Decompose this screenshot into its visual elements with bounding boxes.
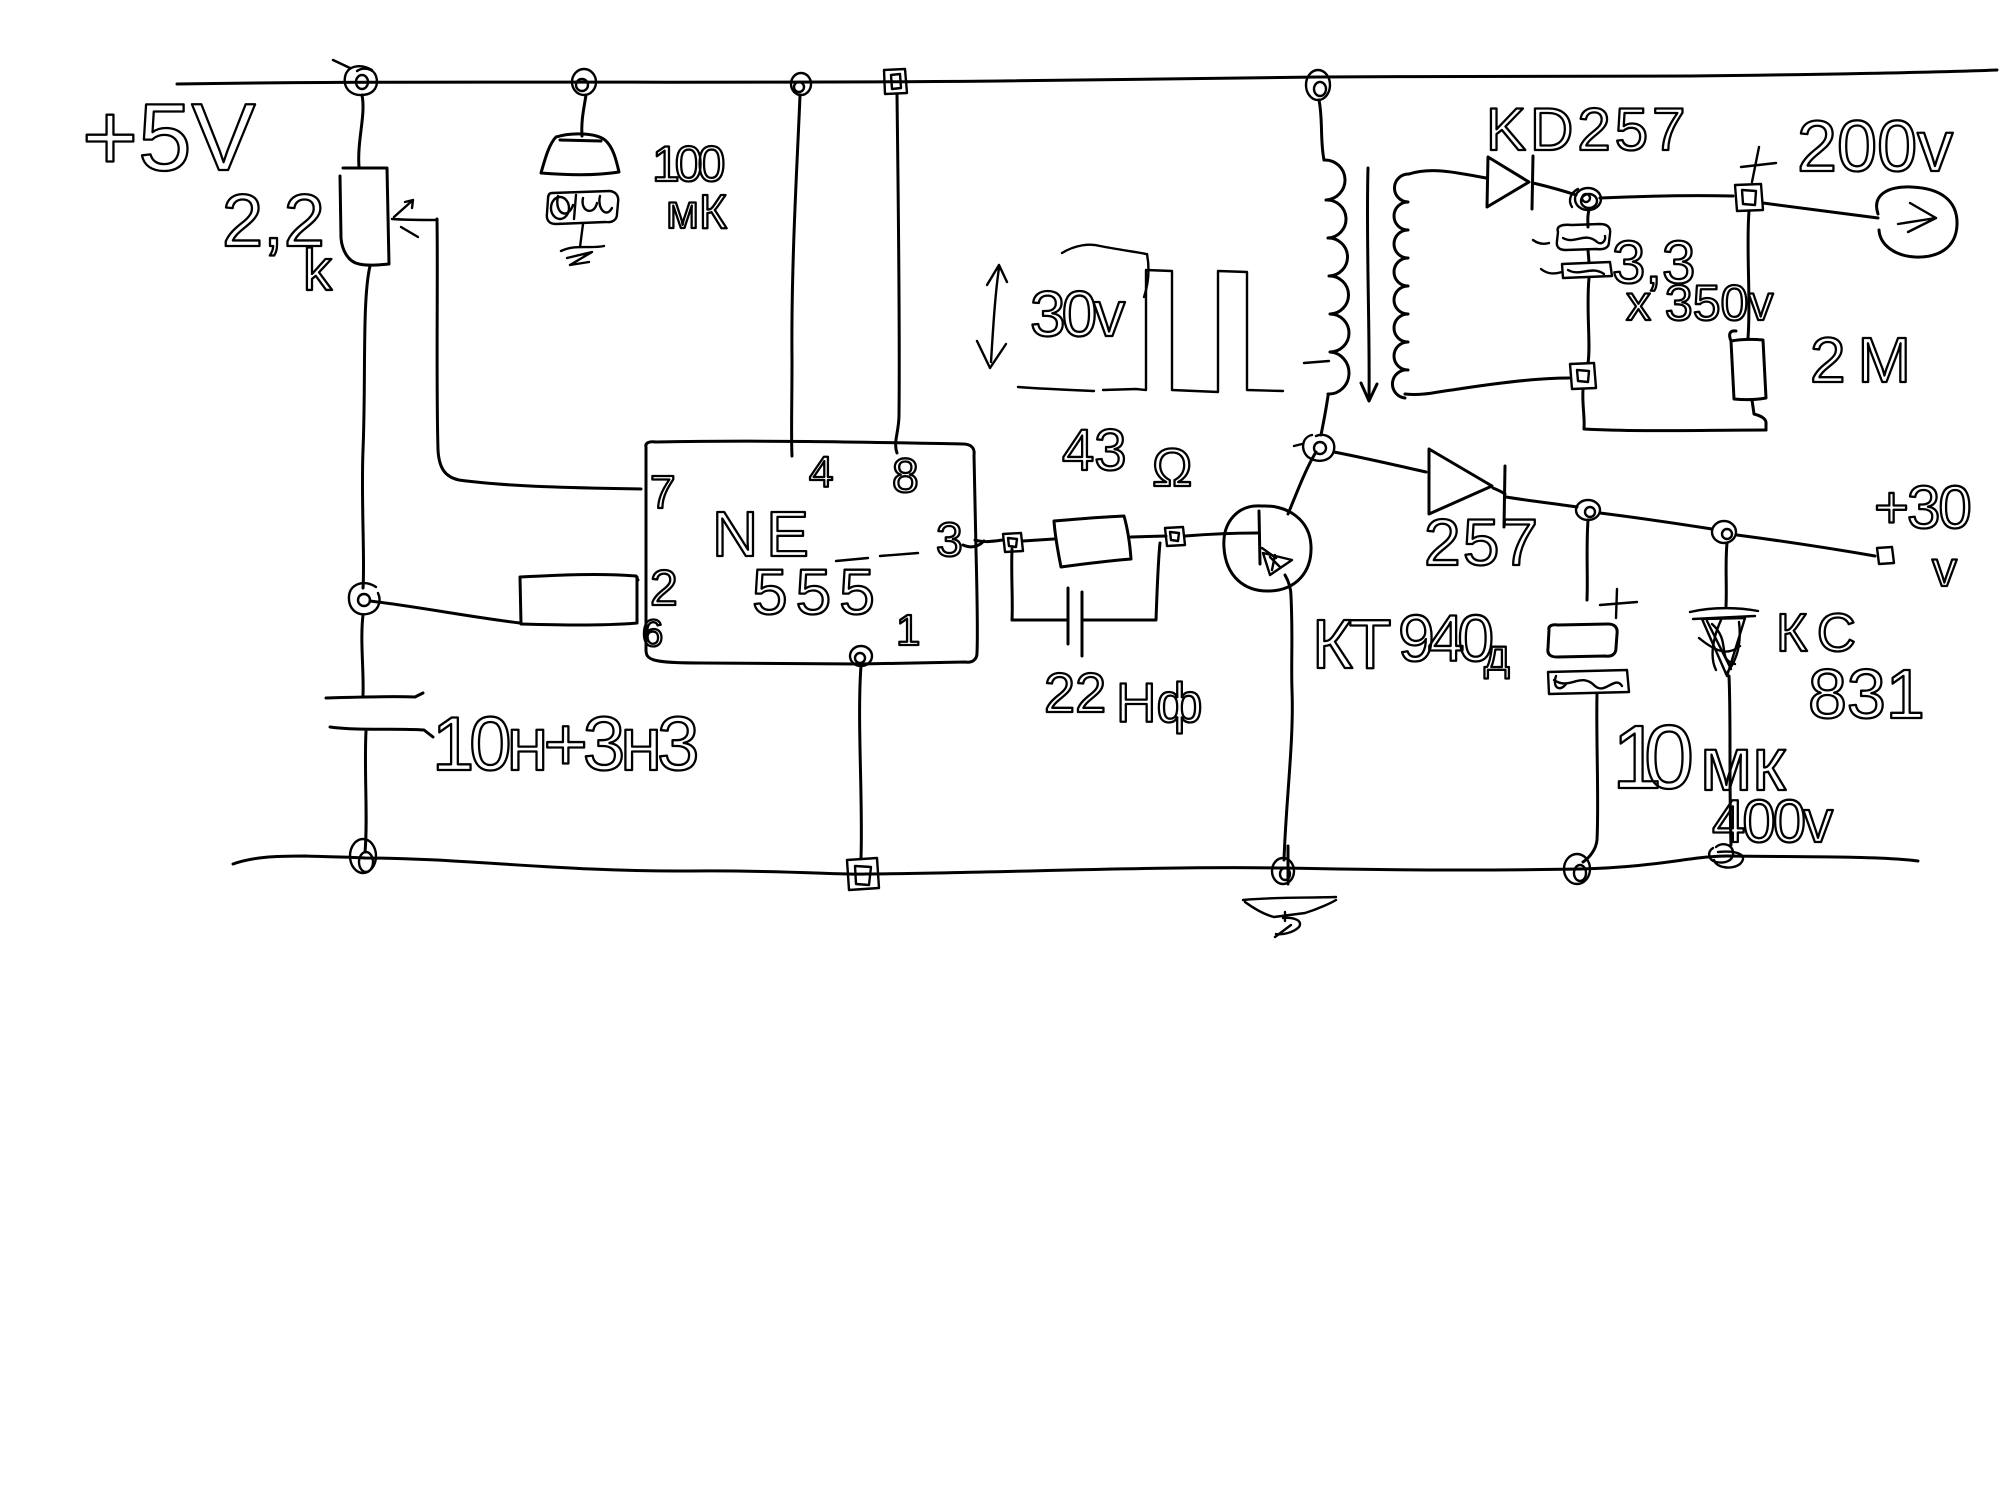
svg-text:8: 8 bbox=[892, 450, 919, 503]
svg-text:КС: КС bbox=[1776, 603, 1866, 663]
svg-text:6: 6 bbox=[642, 613, 663, 655]
svg-text:10н+3н3: 10н+3н3 bbox=[432, 702, 696, 787]
svg-text:KD257: KD257 bbox=[1486, 96, 1689, 163]
svg-text:+5V: +5V bbox=[82, 84, 255, 191]
svg-text:7: 7 bbox=[650, 466, 676, 518]
svg-text:100: 100 bbox=[652, 136, 724, 192]
svg-text:x 350v: x 350v bbox=[1626, 275, 1773, 331]
svg-text:Ω: Ω bbox=[1152, 438, 1192, 498]
svg-text:30v: 30v bbox=[1030, 278, 1125, 350]
svg-text:3: 3 bbox=[936, 514, 963, 567]
svg-text:д: д bbox=[1484, 631, 1510, 680]
svg-text:1: 1 bbox=[896, 606, 920, 655]
svg-text:k: k bbox=[303, 238, 333, 303]
svg-text:257: 257 bbox=[1424, 505, 1540, 579]
svg-text:2: 2 bbox=[650, 560, 678, 616]
svg-text:831: 831 bbox=[1808, 655, 1925, 733]
svg-text:+30: +30 bbox=[1874, 474, 1970, 541]
svg-text:мК: мК bbox=[666, 186, 727, 239]
svg-text:940: 940 bbox=[1398, 601, 1492, 675]
svg-text:4: 4 bbox=[809, 448, 833, 497]
svg-text:43: 43 bbox=[1062, 418, 1127, 483]
svg-text:22: 22 bbox=[1044, 661, 1106, 724]
svg-text:Нф: Нф bbox=[1116, 671, 1203, 734]
svg-text:2M: 2M bbox=[1810, 324, 1923, 396]
svg-text:v: v bbox=[1932, 541, 1957, 597]
svg-text:555: 555 bbox=[752, 556, 883, 628]
svg-text:КТ: КТ bbox=[1312, 605, 1391, 683]
svg-text:200v: 200v bbox=[1797, 107, 1953, 187]
